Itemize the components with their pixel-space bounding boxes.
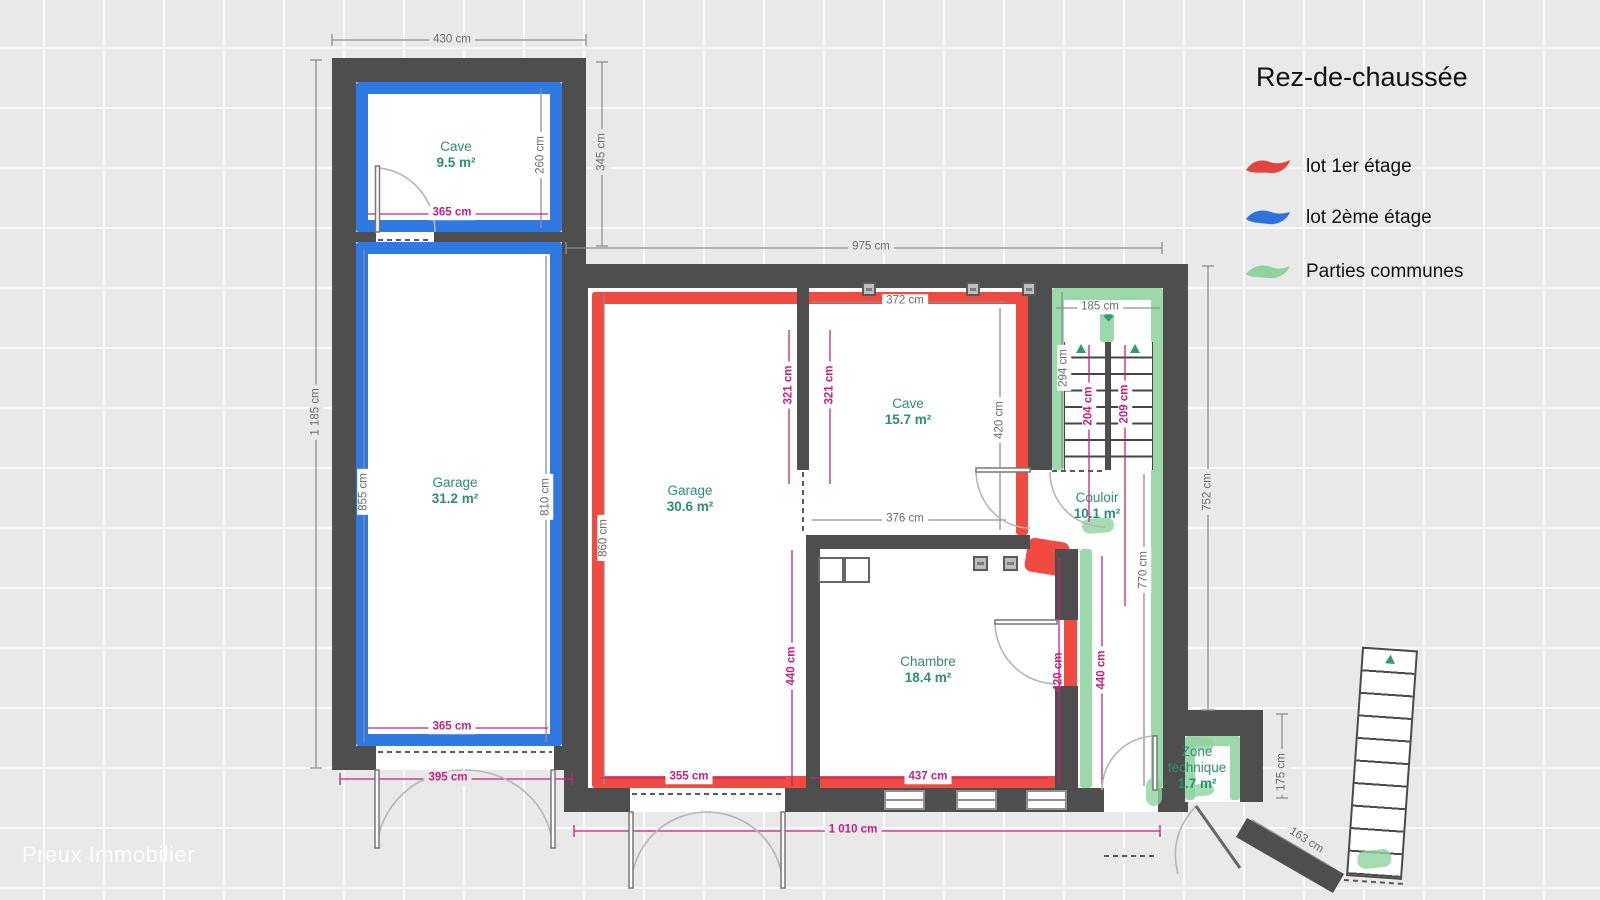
lot1-stripe [592, 292, 1028, 304]
lot2-stripe [550, 82, 562, 232]
watermark: Preux Immobilier [22, 842, 195, 868]
legend-item-communes: Parties communes [1243, 258, 1463, 286]
wall-fixture-icon [1022, 282, 1036, 296]
dimension-label: 294 cm [1057, 345, 1071, 391]
stair-divider [1105, 342, 1110, 470]
dimension-label: 355 cm [665, 770, 712, 784]
floor-plan: 430 cm 345 cm 260 cm 365 cm 1 185 cm 855… [0, 0, 1600, 900]
dimension-label: 365 cm [428, 720, 475, 734]
legend-label: lot 2ème étage [1306, 207, 1432, 229]
garage-door-opening [376, 746, 554, 770]
legend-label: Parties communes [1306, 261, 1463, 283]
dimension-label: 752 cm [1201, 469, 1215, 515]
lot2-stripe [356, 82, 562, 94]
lot2-swatch-icon [1243, 204, 1293, 232]
dimension-label: 770 cm [1137, 547, 1151, 593]
dimension-label: 1 010 cm [825, 823, 882, 837]
dimension-label: 855 cm [357, 469, 371, 515]
exterior-stairs-arrow [1385, 654, 1396, 664]
dimension-label: 345 cm [595, 129, 609, 175]
dimension-label: 1 185 cm [309, 384, 323, 439]
wall-fixture-icon [862, 282, 876, 296]
common-stripe [1080, 549, 1092, 788]
legend-item-lot1: lot 1er étage [1243, 153, 1412, 181]
dimension-label: 395 cm [424, 771, 471, 785]
dimension-label: 437 cm [904, 770, 951, 784]
dimension-label: 860 cm [597, 515, 611, 561]
room-label-garage-2: Garage30.6 m² [667, 483, 714, 515]
stair-direction-arrow [1130, 344, 1140, 353]
cupboard [818, 557, 844, 583]
lot1-stripe [592, 776, 1060, 788]
wall-garage-chambre [806, 549, 820, 788]
dimension-label: 975 cm [848, 240, 894, 254]
dimension-label: 440 cm [1095, 646, 1109, 693]
dimension-label: 376 cm [882, 512, 928, 526]
wall-cave-garage [434, 232, 562, 242]
dimension-label: 209 cm [1118, 380, 1132, 427]
lot2-stripe [356, 220, 562, 232]
room-label-couloir: Couloir10.1 m² [1074, 490, 1121, 522]
cupboard [844, 557, 870, 583]
wall-fixture-icon [966, 282, 980, 296]
dimension-label: 430 cm [429, 33, 475, 47]
dimension-label: 420 cm [993, 397, 1007, 443]
dimension-label: 440 cm [785, 642, 799, 689]
wall-garage-cave [797, 288, 809, 470]
lot2-stripe [356, 242, 562, 254]
lot1-stripe [1016, 292, 1028, 535]
legend-label: lot 1er étage [1306, 156, 1412, 178]
wall-cave-chambre [806, 535, 1030, 549]
communes-swatch-icon [1243, 258, 1293, 286]
room-label-zone-technique: Zone technique1.7 m² [1161, 744, 1233, 792]
room-label-cave-2: Cave15.7 m² [885, 396, 932, 428]
dimension-label: 810 cm [539, 474, 553, 520]
exterior-stairs [1346, 647, 1418, 880]
left-building-interior [356, 82, 562, 746]
room-label-garage-1: Garage31.2 m² [432, 475, 479, 507]
wall-cave-stairs [1028, 288, 1052, 470]
window [884, 790, 925, 810]
window [956, 790, 997, 810]
dimension-label: 175 cm [1275, 749, 1289, 795]
dimension-label: 185 cm [1077, 300, 1123, 314]
window [1026, 790, 1067, 810]
stair-direction-arrow [1076, 344, 1086, 353]
main-garage-door-opening [630, 788, 785, 812]
wall-cave-garage [356, 232, 376, 242]
room-label-cave-1: Cave9.5 m² [436, 139, 475, 171]
dimension-label: 372 cm [882, 294, 928, 308]
wall-fixture-icon [973, 556, 988, 571]
dimension-label: 420 cm [1052, 648, 1066, 695]
lot2-stripe [356, 82, 368, 232]
lot2-stripe [356, 734, 562, 746]
dimension-label: 321 cm [823, 361, 837, 408]
common-paint-smudge [1356, 848, 1392, 869]
dimension-label: 204 cm [1082, 382, 1096, 429]
page-title: Rez-de-chaussée [1256, 62, 1468, 93]
common-paint-smudge [1146, 778, 1162, 806]
dimension-label: 365 cm [428, 206, 475, 220]
lot1-swatch-icon [1243, 153, 1293, 181]
legend-item-lot2: lot 2ème étage [1243, 204, 1432, 232]
dimension-label: 260 cm [534, 132, 548, 178]
room-label-chambre: Chambre18.4 m² [900, 654, 956, 686]
wall-chambre-couloir [1055, 549, 1078, 620]
dimension-label: 321 cm [782, 361, 796, 408]
wall-chambre-couloir [1055, 686, 1078, 788]
wall-fixture-icon [1003, 556, 1018, 571]
